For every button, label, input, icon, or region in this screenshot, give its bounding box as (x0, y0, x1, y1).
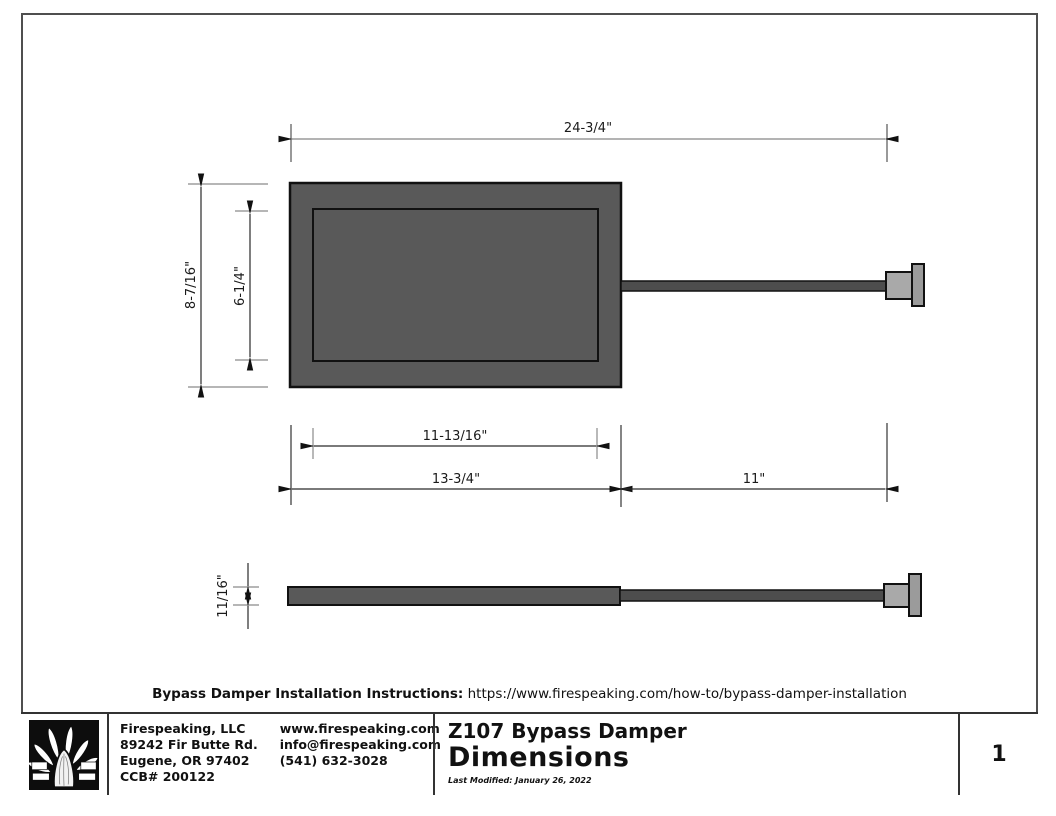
dim-thickness: 11/16" (216, 563, 259, 629)
installation-note-url[interactable]: https://www.firespeaking.com/how-to/bypa… (463, 686, 907, 702)
damper-plate-side-view (288, 587, 620, 605)
dim-label-overall-width: 24-3/4" (564, 121, 612, 136)
damper-top-view (290, 183, 924, 387)
company-city: Eugene, OR 97402 (120, 753, 258, 769)
dim-label-thickness: 11/16" (216, 574, 231, 617)
page-number-cell: 1 (958, 714, 1038, 795)
title-block: Firespeaking, LLC 89242 Fir Butte Rd. Eu… (21, 712, 1038, 795)
last-modified: Last Modified: January 26, 2022 (448, 776, 958, 785)
company-website[interactable]: www.firespeaking.com (280, 721, 441, 737)
drawing-title-cell: Z107 Bypass Damper Dimensions Last Modif… (433, 714, 958, 795)
logo-cell (21, 714, 107, 795)
dim-inner-width: 11-13/16" (313, 428, 597, 459)
company-email[interactable]: info@firespeaking.com (280, 737, 441, 753)
handle-cap-side-view (909, 574, 921, 616)
dim-label-outer-height: 8-7/16" (184, 261, 199, 309)
company-street: 89242 Fir Butte Rd. (120, 737, 258, 753)
handle-knob-top-view (886, 272, 913, 299)
product-title: Z107 Bypass Damper (448, 719, 958, 743)
firespeaking-logo-icon (29, 720, 99, 790)
page-number: 1 (991, 742, 1006, 767)
installation-note: Bypass Damper Installation Instructions:… (21, 686, 1038, 702)
dim-label-rod-length: 11" (743, 472, 766, 487)
company-ccb: CCB# 200122 (120, 769, 258, 785)
handle-knob-side-view (884, 584, 910, 607)
handle-cap-top-view (912, 264, 924, 306)
dim-inner-height: 6-1/4" (233, 211, 268, 360)
company-address: Firespeaking, LLC 89242 Fir Butte Rd. Eu… (120, 721, 258, 795)
company-name: Firespeaking, LLC (120, 721, 258, 737)
dim-rod-length: 11" (623, 423, 887, 502)
dim-label-inner-height: 6-1/4" (233, 266, 248, 306)
dim-overall-width: 24-3/4" (291, 121, 887, 162)
company-contact: www.firespeaking.com info@firespeaking.c… (280, 721, 441, 795)
company-info-cell: Firespeaking, LLC 89242 Fir Butte Rd. Eu… (107, 714, 433, 795)
control-rod-side-view (620, 590, 884, 601)
damper-side-view (288, 574, 921, 616)
installation-note-label: Bypass Damper Installation Instructions: (152, 686, 463, 702)
damper-plate-top-view (290, 183, 621, 387)
dim-outer-height: 8-7/16" (184, 184, 268, 387)
control-rod-top-view (621, 281, 886, 291)
dim-label-plate-width: 13-3/4" (432, 472, 480, 487)
sheet-title: Dimensions (448, 743, 958, 772)
company-phone: (541) 632-3028 (280, 753, 441, 769)
dim-label-inner-width: 11-13/16" (423, 429, 488, 444)
